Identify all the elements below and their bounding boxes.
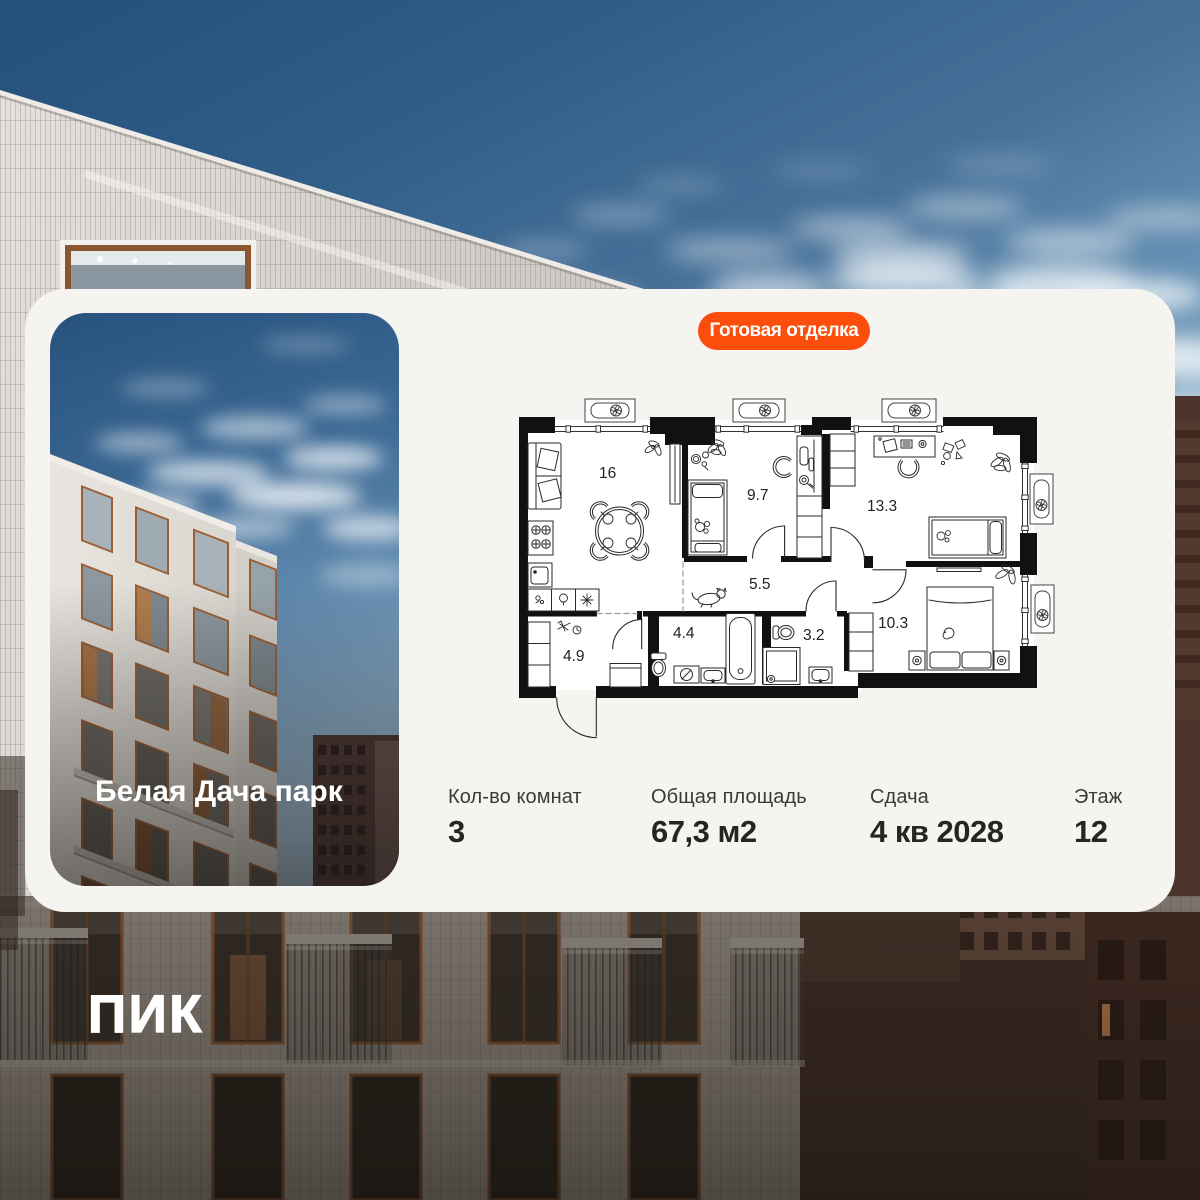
svg-text:4.9: 4.9 [563, 648, 585, 665]
svg-text:3.2: 3.2 [803, 627, 825, 644]
svg-text:10.3: 10.3 [878, 615, 908, 632]
svg-text:13.3: 13.3 [867, 498, 897, 515]
svg-text:9.7: 9.7 [747, 487, 769, 504]
svg-text:4.4: 4.4 [673, 625, 695, 642]
svg-text:16: 16 [599, 465, 616, 482]
svg-text:5.5: 5.5 [749, 576, 771, 593]
